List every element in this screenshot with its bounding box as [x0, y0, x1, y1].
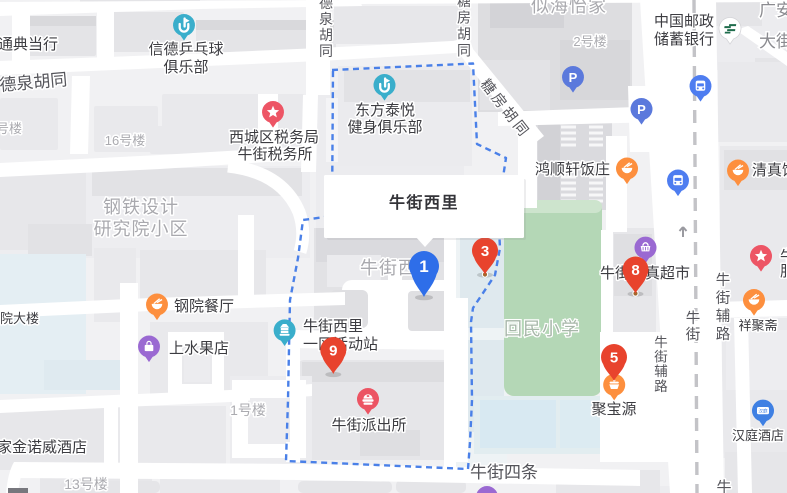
svg-text:P: P: [569, 70, 578, 85]
svg-text:1: 1: [419, 257, 428, 276]
svg-text:皇家金诺威酒店: 皇家金诺威酒店: [0, 439, 87, 456]
svg-text:俱乐部: 俱乐部: [163, 59, 208, 76]
svg-text:16号楼: 16号楼: [105, 133, 145, 148]
svg-text:上水果店: 上水果店: [169, 340, 229, 357]
svg-text:大街: 大街: [759, 32, 787, 51]
svg-text:5: 5: [610, 350, 618, 367]
svg-text:祥聚斋: 祥聚斋: [738, 318, 777, 333]
svg-text:储蓄银行: 储蓄银行: [654, 31, 714, 48]
svg-text:西城区税务局: 西城区税务局: [229, 129, 319, 146]
svg-text:牛街辅路: 牛街辅路: [654, 335, 668, 394]
svg-text:钢铁设计: 钢铁设计: [103, 197, 179, 217]
svg-text:中国邮政: 中国邮政: [654, 13, 714, 30]
svg-text:服: 服: [780, 263, 787, 280]
svg-text:研究院小区: 研究院小区: [94, 219, 189, 239]
svg-text:牛街派出所: 牛街派出所: [331, 417, 406, 434]
svg-text:9: 9: [329, 343, 337, 360]
svg-text:汉庭: 汉庭: [758, 407, 768, 414]
svg-text:广安: 广安: [759, 1, 787, 20]
svg-text:号楼: 号楼: [0, 121, 22, 136]
svg-text:牛街西里: 牛街西里: [303, 318, 363, 335]
svg-text:东方泰悦: 东方泰悦: [355, 102, 415, 119]
svg-text:信德乒乓球: 信德乒乓球: [148, 40, 223, 58]
svg-text:钢院餐厅: 钢院餐厅: [174, 297, 234, 315]
svg-text:清真饭: 清真饭: [752, 161, 787, 179]
svg-text:牛: 牛: [716, 479, 731, 493]
svg-text:2号楼: 2号楼: [573, 34, 606, 49]
svg-text:3: 3: [481, 243, 489, 260]
svg-text:聚宝源: 聚宝源: [591, 401, 636, 418]
svg-text:牛街西里: 牛街西里: [389, 193, 459, 212]
svg-text:13号楼: 13号楼: [64, 476, 108, 492]
svg-text:通典当行: 通典当行: [0, 36, 58, 53]
svg-text:似海怡家: 似海怡家: [531, 0, 607, 16]
svg-text:回民小学: 回民小学: [504, 319, 580, 339]
svg-text:医院大楼: 医院大楼: [0, 311, 39, 326]
svg-text:鸿顺轩饭庄: 鸿顺轩饭庄: [535, 160, 610, 178]
svg-text:1号楼: 1号楼: [230, 402, 266, 418]
svg-text:P: P: [637, 102, 646, 117]
svg-text:牛街税务所: 牛街税务所: [237, 146, 312, 163]
svg-text:糖房胡同: 糖房胡同: [457, 0, 471, 59]
svg-text:牛街: 牛街: [686, 310, 701, 344]
svg-text:牛街四条: 牛街四条: [470, 463, 538, 482]
svg-text:8: 8: [631, 262, 639, 279]
svg-text:健身俱乐部: 健身俱乐部: [347, 119, 422, 136]
svg-text:汉庭酒店: 汉庭酒店: [732, 428, 784, 443]
svg-text:德泉胡同: 德泉胡同: [319, 0, 333, 59]
